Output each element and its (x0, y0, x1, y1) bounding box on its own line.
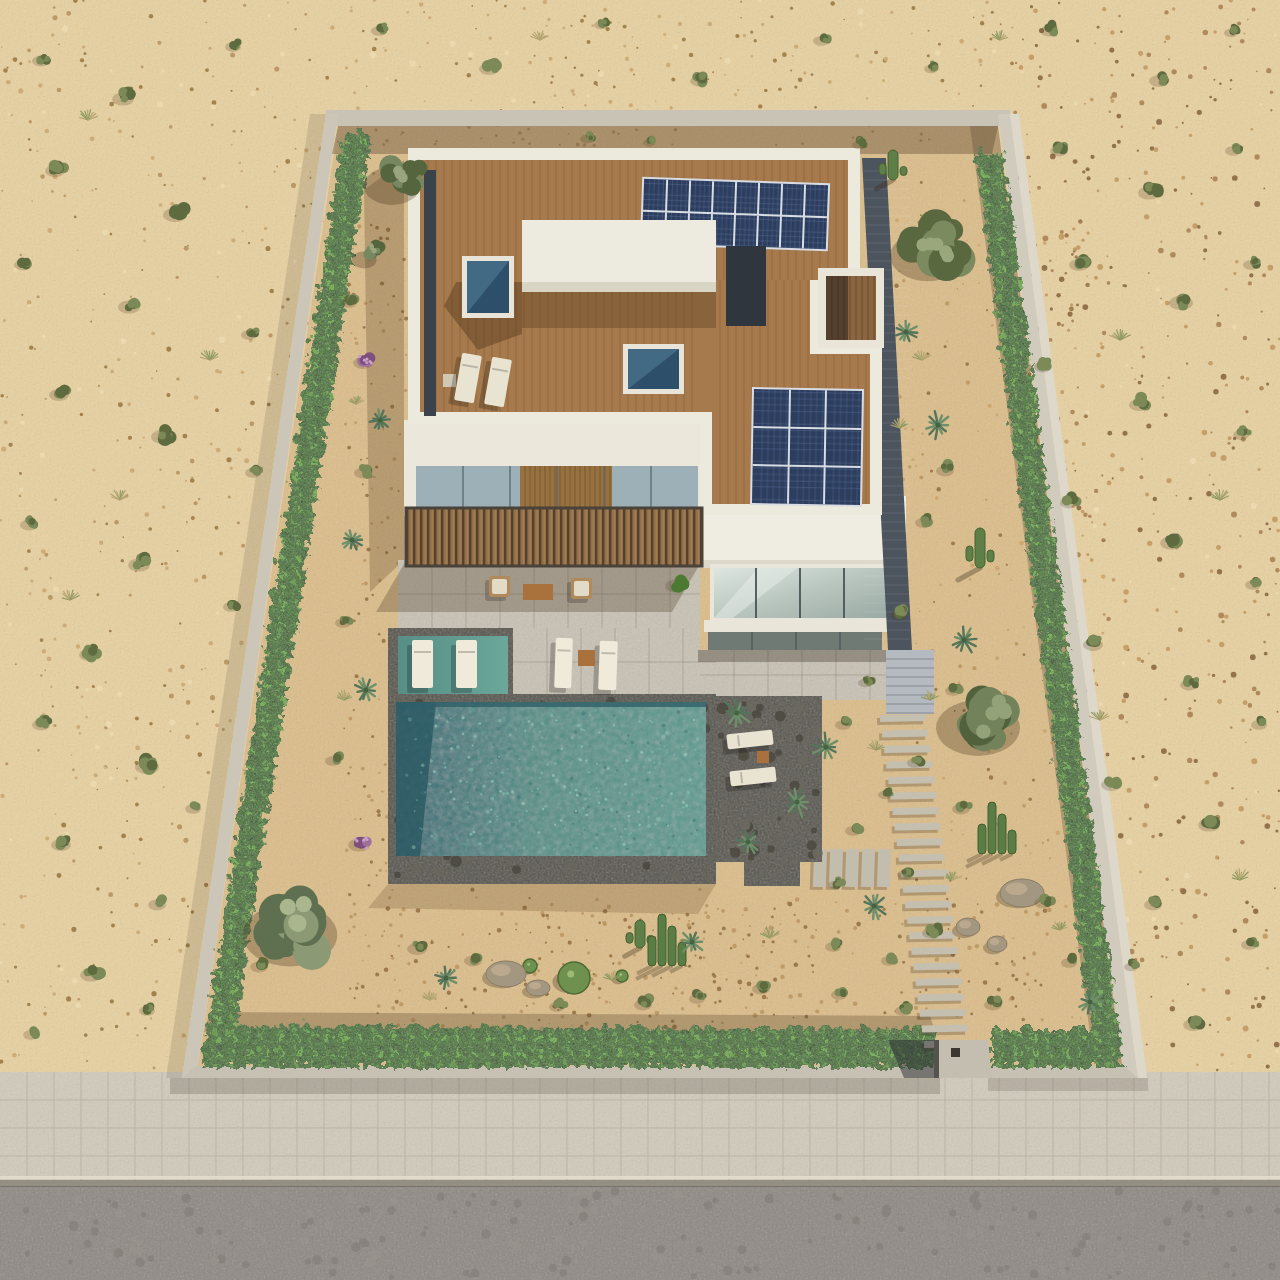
desert-shrub (1053, 141, 1068, 154)
rock-south-2-highlight (529, 982, 541, 989)
entry-slab-path (922, 1025, 968, 1033)
pergola-canopy (406, 508, 702, 566)
entry-slab-path (884, 745, 930, 753)
roof-court-recess (726, 246, 766, 326)
sidewalk-wall-shadow-right (988, 1078, 1148, 1091)
rock-south-1-highlight (491, 964, 511, 976)
patio-lounger-1 (554, 638, 573, 689)
saguaro-north-trunk (888, 150, 898, 180)
entry-slab-path (907, 916, 953, 924)
entry-slab-path (913, 962, 959, 970)
roof-clerestory-strip (424, 170, 436, 416)
deck-slab-group (845, 849, 859, 887)
curb-shadow (0, 1180, 1280, 1187)
hedge-bottom-right (988, 1026, 1116, 1064)
glass-box-lower-glass (708, 632, 882, 650)
pool-top-shade (396, 702, 706, 707)
patio-side-table (578, 650, 595, 666)
gate-leaf (934, 1040, 939, 1078)
curb-highlight (0, 1176, 1280, 1179)
gate-intercom (951, 1048, 960, 1057)
rock-east-path-highlight (1006, 883, 1028, 896)
saguaro-east-trunk (975, 528, 985, 568)
ledge-lounger-1 (412, 640, 433, 688)
scene-canvas (0, 0, 1280, 1280)
gate-pad (932, 1040, 992, 1078)
entry-slab-path (903, 885, 949, 893)
road (0, 1186, 1280, 1280)
glass-box-sill (704, 620, 888, 632)
entry-slab-path (897, 838, 943, 846)
boulder-mossy-2-highlight (990, 938, 1000, 945)
entry-slab-path (899, 854, 945, 862)
solar-array-right-panels (752, 389, 862, 505)
patio-coffee-table (523, 584, 553, 600)
entry-slab-path (905, 900, 951, 908)
entry-slab-path (911, 947, 957, 955)
wall-top (326, 110, 1010, 126)
entry-slab-path (918, 994, 964, 1002)
saguaro-east-arm-right (987, 550, 994, 562)
ledge-lounger-2 (456, 640, 477, 688)
barrel-cactus-small-1-crown (619, 973, 622, 976)
saguaro-north-arm-left (879, 164, 886, 175)
entry-slab-path (916, 978, 962, 986)
barrel-cactus-large (558, 962, 590, 994)
saguaro-east-arm-left (966, 546, 973, 561)
entry-slab-path (893, 807, 939, 815)
entry-slab-path (890, 792, 936, 800)
notch-terrace-shade (826, 276, 848, 340)
entry-slab-path (895, 823, 941, 831)
deck-lounger-1-backrest (738, 735, 739, 746)
hedge-bottom-left (200, 1022, 936, 1064)
deck-lounger-2-backrest (741, 772, 742, 783)
barrel-cactus-small-2-crown (527, 963, 530, 966)
entry-slab-path (880, 714, 926, 722)
glass-box-ground-shadow (698, 650, 894, 662)
saguaro-north-arm-right (900, 167, 907, 176)
entry-slab-path (882, 730, 928, 738)
house-west-shadow (364, 160, 404, 592)
deck-side-table (757, 751, 769, 763)
entry-slab-path (888, 776, 934, 784)
sidewalk-wall-shadow (170, 1078, 940, 1094)
barrel-cactus-large-crown (567, 970, 574, 977)
penthouse-front-face (522, 282, 716, 292)
patio-armchair-1-cushion (492, 579, 507, 594)
deck-slab-group (877, 849, 891, 887)
saguaro-south-arm-left (626, 933, 633, 944)
aerial-villa-render: Aerial render of modern desert villa wit… (0, 0, 1280, 1280)
entry-slab-path (920, 1009, 966, 1017)
pool-main-water (396, 702, 706, 856)
wall-bottom-right-segment (988, 1066, 1138, 1078)
penthouse-box (522, 220, 716, 282)
saguaro-south-trunk (635, 920, 645, 948)
patio-armchair-2-cushion (574, 581, 589, 596)
patio-lounger-2 (598, 641, 618, 691)
wall-bottom-left-segment (182, 1066, 936, 1078)
deck-slab-group (861, 849, 875, 887)
boulder-mossy-1-highlight (959, 920, 971, 928)
